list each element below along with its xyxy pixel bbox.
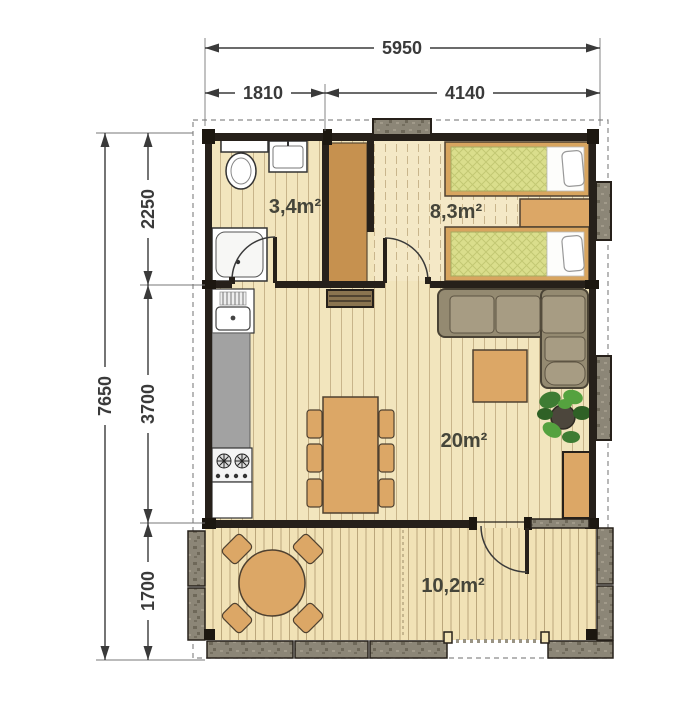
dim-width-right: 4140 [445,83,485,103]
post [323,129,332,145]
kitchen [212,289,254,518]
dim-width-total: 5950 [382,38,422,58]
sofa-cushion [450,296,494,333]
dim-width-left: 1810 [243,83,283,103]
post [469,517,477,530]
window-east-living [596,356,611,440]
post [202,129,215,144]
post [202,280,216,289]
dining-set [307,397,394,513]
terrace-corner-post-right [586,629,597,640]
drainboard [220,292,246,305]
bed-2-mattress [451,232,547,276]
window-south [531,519,589,528]
stove-burner-left [217,454,231,468]
wall-bathroom-east [322,141,329,287]
sofa-cushion [542,296,585,333]
door-node [229,277,235,284]
railing-bottom-4 [548,641,613,658]
terrace-corner-post-left [204,629,215,640]
dining-table [323,397,378,513]
post [587,129,599,144]
floor-plan-canvas: 5950 1810 4140 7650 2250 3700 1700 3,4m²… [0,0,700,700]
bed-1-mattress [451,147,547,191]
post [585,280,599,289]
door-node [425,277,431,284]
wall-hall-east [367,141,374,232]
window-east-bedroom [596,182,611,240]
kitchen-cabinet [212,482,252,518]
nightstand [520,199,590,227]
window-north [373,119,431,135]
wardrobe [327,143,367,282]
step-post-right [541,632,549,643]
bed-2-pillow [562,235,585,272]
railing-left-upper [188,531,205,586]
railing-bottom-2 [295,641,368,658]
bench [327,290,373,307]
side-cabinet [563,452,593,518]
sofa-cushion [545,337,585,361]
dim-height-total: 7650 [95,376,115,416]
terrace-table [239,550,305,616]
stove-burner-right [235,454,249,468]
dim-height-top: 2250 [138,189,158,229]
wall-west [205,133,212,528]
dining-chair [379,444,394,472]
bedroom-area-label: 8,3m² [430,201,483,223]
step-post-left [444,632,452,643]
terrace-door-leaf [525,528,529,574]
post [202,518,216,529]
sink-drain [231,316,236,321]
dining-chair [379,479,394,507]
railing-bottom-3 [370,641,447,658]
railing-right-upper [597,528,613,584]
railing-left-lower [188,588,205,640]
floor-plan-page: 5950 1810 4140 7650 2250 3700 1700 3,4m²… [0,0,700,700]
wall-south-left [205,520,477,528]
dining-chair [379,410,394,438]
wall-east [589,133,596,528]
kitchen-counter [212,333,250,448]
dim-height-middle: 3700 [138,384,158,424]
sofa-chaise-end [545,362,585,385]
bedroom-door-leaf [383,238,387,283]
bed-1-pillow [562,150,585,187]
bed-2 [445,227,589,281]
dim-height-bottom: 1700 [138,571,158,611]
railing-bottom-1 [207,641,293,658]
coffee-table [473,350,527,402]
bathroom-door-leaf [273,237,277,283]
wall-mid-3 [430,281,596,288]
wall-mid-2 [275,281,385,288]
dining-chair [307,444,322,472]
railing-right-lower [597,586,613,640]
dining-chair [307,479,322,507]
bathroom-area-label: 3,4m² [269,196,322,218]
terrace-area-label: 10,2m² [421,575,485,597]
living-area-label: 20m² [441,430,488,452]
sofa-cushion [496,296,540,333]
dining-chair [307,410,322,438]
bed-1 [445,142,589,196]
